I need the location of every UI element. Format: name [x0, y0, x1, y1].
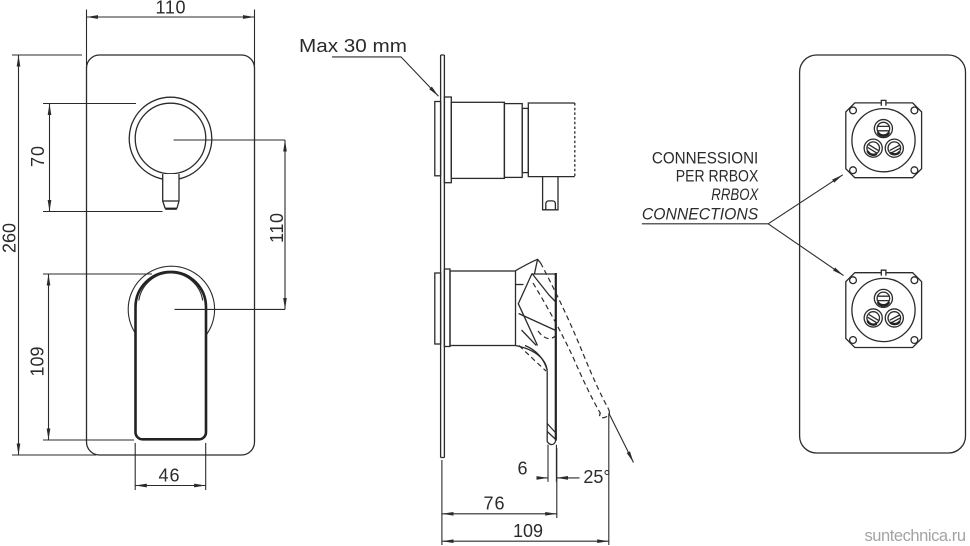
- svg-text:25°: 25°: [583, 467, 610, 487]
- svg-text:110: 110: [156, 0, 186, 18]
- svg-text:110: 110: [267, 213, 287, 243]
- svg-text:109: 109: [513, 521, 543, 541]
- svg-text:6: 6: [517, 459, 527, 479]
- svg-text:CONNECTIONS: CONNECTIONS: [642, 205, 758, 223]
- svg-text:70: 70: [28, 146, 48, 167]
- svg-text:260: 260: [0, 223, 20, 253]
- svg-text:RRBOX: RRBOX: [711, 186, 759, 204]
- svg-text:Max 30 mm: Max 30 mm: [299, 36, 407, 56]
- svg-text:46: 46: [159, 466, 180, 486]
- svg-text:CONNESSIONI: CONNESSIONI: [652, 150, 758, 168]
- svg-text:suntechnica.ru: suntechnica.ru: [865, 527, 967, 545]
- svg-text:109: 109: [28, 347, 48, 377]
- svg-text:76: 76: [484, 494, 505, 514]
- svg-text:PER RRBOX: PER RRBOX: [676, 167, 759, 185]
